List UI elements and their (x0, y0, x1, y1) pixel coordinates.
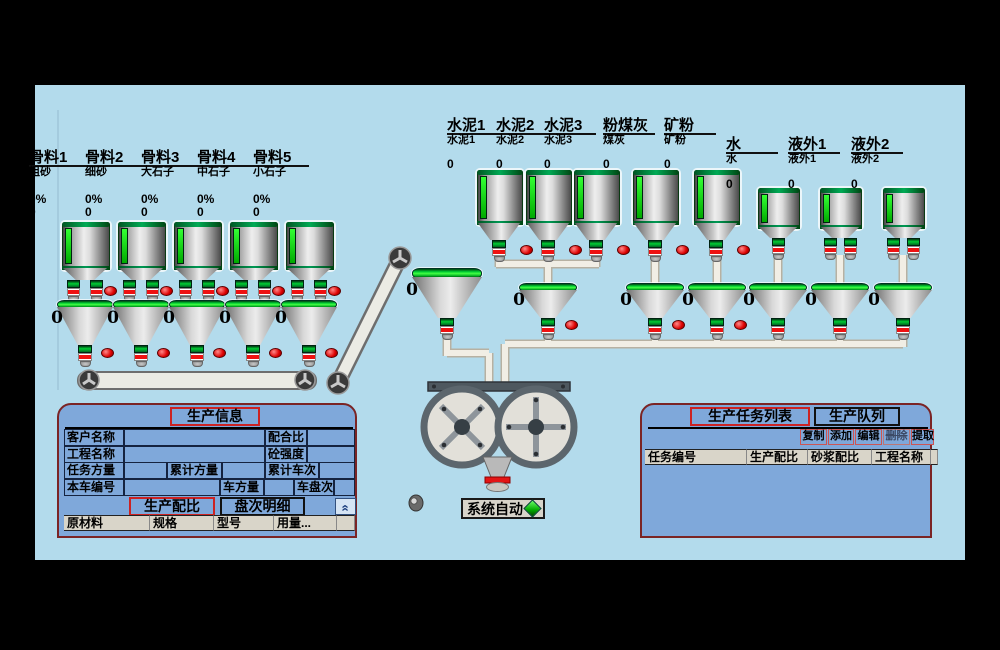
silo-cone (62, 268, 108, 280)
outlet-valve (291, 280, 304, 298)
weigh-hopper: 0 (626, 283, 684, 338)
silo-material-label: 煤灰 (603, 134, 655, 146)
weigh-hopper: 0 (874, 283, 932, 338)
outlet-valve (78, 345, 92, 361)
outlet-valve (190, 345, 204, 361)
weigh-hopper: 0 (519, 283, 577, 338)
silo-percent-value: 0% (29, 193, 85, 205)
silo-label: 骨料3 (141, 150, 197, 167)
hopper-weight-value: 0 (163, 310, 175, 327)
silo-body (62, 222, 110, 270)
task-button-4[interactable]: 删除 (883, 429, 910, 445)
hopper-weight-value: 0 (219, 310, 231, 327)
info-field-value[interactable] (319, 462, 355, 479)
hopper-weight-value: 0 (51, 310, 63, 327)
silo-body (633, 170, 679, 225)
silo-cone (633, 223, 677, 240)
silo-body (230, 222, 278, 270)
level-bar (761, 194, 768, 223)
outlet-valve (772, 238, 785, 254)
hopper-weight-value: 0 (513, 292, 525, 309)
task-button-5[interactable]: 提取 (911, 429, 934, 445)
silo-material-label: 水泥3 (544, 134, 596, 146)
silo-weight-value: 0 (85, 206, 141, 218)
outlet-valve (134, 345, 148, 361)
silo-material-label: 矿粉 (664, 134, 716, 146)
hopper-body (519, 290, 577, 318)
hopper-body (749, 290, 807, 318)
level-bar (121, 228, 128, 264)
info-field-label: 配合比 (265, 429, 307, 446)
horizontal-conveyor (78, 370, 316, 390)
silo-cone (820, 227, 860, 238)
scada-screen: 生产信息 客户名称配合比工程名称砼强度任务方量累计方量累计车次本车编号车方量车盘… (35, 85, 965, 560)
level-bar (697, 176, 704, 219)
silo-cone (477, 223, 521, 240)
aggregate-silo-unit: 骨料5小石子0%0 (281, 150, 337, 300)
info-field-label: 累计车次 (265, 462, 319, 479)
silo-label: 矿粉 (664, 118, 716, 135)
weigh-hopper: 0 (688, 283, 746, 338)
info-field-label: 累计方量 (167, 462, 222, 479)
aggregate-weigh-hopper: 0 (113, 300, 169, 366)
info-field-value[interactable] (124, 429, 265, 446)
silo-label: 骨料5 (253, 150, 309, 167)
hopper-body (113, 307, 169, 345)
receiving-funnel: 0 (412, 268, 482, 334)
silo-cone (286, 268, 332, 280)
outlet-valve (235, 280, 248, 298)
silo-weight-value: 0 (447, 158, 499, 170)
hopper-weight-value: 0 (107, 310, 119, 327)
silo-cone (574, 223, 618, 240)
info-field-value[interactable] (307, 446, 355, 463)
level-bar (823, 194, 830, 223)
silo-percent-value: 0% (197, 193, 253, 205)
silo-percent-value: 0% (141, 193, 197, 205)
mixer-discharge-gate (483, 457, 512, 492)
column-header[interactable]: 生产配比 (747, 449, 808, 465)
silo-weight-value: 0 (197, 206, 253, 218)
column-header[interactable] (337, 515, 355, 531)
silo-label: 液外2 (851, 137, 903, 154)
hopper-body (281, 307, 337, 345)
info-field-label: 砼强度 (265, 446, 307, 463)
outlet-valve (123, 280, 136, 298)
column-header[interactable]: 规格 (150, 515, 214, 531)
level-bar (886, 194, 893, 223)
outlet-valve (844, 238, 857, 254)
alarm-lamp (325, 348, 338, 358)
silo-label: 粉煤灰 (603, 118, 655, 135)
info-field-value[interactable] (222, 462, 265, 479)
silo-cone (883, 227, 923, 238)
silo-cone (118, 268, 164, 280)
task-button-2[interactable]: 添加 (828, 429, 854, 445)
column-header[interactable] (931, 449, 938, 465)
alarm-lamp (676, 245, 689, 255)
outlet-valve (896, 318, 910, 334)
silo-weight-value: 0 (496, 158, 548, 170)
outlet-valve (202, 280, 215, 298)
aggregate-weigh-hopper: 0 (281, 300, 337, 366)
outlet-valve (541, 318, 555, 334)
hopper-body (874, 290, 932, 318)
alarm-lamp (565, 320, 578, 330)
silo-label: 水泥3 (544, 118, 596, 135)
silo-label: 水泥1 (447, 118, 499, 135)
system-mode-label: 系统自动 (467, 499, 523, 519)
tab-batch-detail[interactable]: 盘次明细 (220, 497, 305, 516)
silo-weight-value: 0 (141, 206, 197, 218)
silo-material-label: 细砂 (85, 166, 141, 178)
level-bar (233, 228, 240, 264)
level-bar (577, 176, 584, 219)
level-bar (289, 228, 296, 264)
hopper-weight-value: 0 (406, 282, 418, 299)
production-info-title: 生产信息 (170, 407, 260, 426)
silo-percent-value: 0% (253, 193, 309, 205)
silo-material-label: 水 (726, 153, 778, 165)
silo-body (883, 188, 925, 229)
hopper-weight-value: 0 (743, 292, 755, 309)
silo-cone (174, 268, 220, 280)
info-field-value[interactable] (307, 429, 355, 446)
outlet-valve (771, 318, 785, 334)
weigh-hopper: 0 (811, 283, 869, 338)
silo-material-label: 大石子 (141, 166, 197, 178)
level-bar (636, 176, 643, 219)
aggregate-weigh-hopper: 0 (57, 300, 113, 366)
aggregate-weigh-hopper: 0 (169, 300, 225, 366)
level-bar (177, 228, 184, 264)
auto-mode-green-lamp (523, 499, 541, 517)
aggregate-weigh-hopper: 0 (225, 300, 281, 366)
hopper-weight-value: 0 (620, 292, 632, 309)
task-button-1[interactable]: 复制 (800, 429, 827, 445)
silo-weight-value: 0 (29, 206, 85, 218)
level-bar (529, 176, 536, 219)
mixer (424, 382, 574, 492)
silo-weight-value: 0 (664, 158, 716, 170)
silo-body (758, 188, 800, 229)
outlet-valve (440, 318, 454, 334)
silo-body (526, 170, 572, 225)
production-info-panel: 生产信息 客户名称配合比工程名称砼强度任务方量累计方量累计车次本车编号车方量车盘… (57, 403, 357, 538)
silo-label: 骨料1 (29, 150, 85, 167)
column-header[interactable]: 工程名称 (872, 449, 931, 465)
info-field-value[interactable] (334, 479, 355, 496)
outlet-valve (67, 280, 80, 298)
tab-production-ratio[interactable]: 生产配比 (129, 497, 215, 516)
task-list-panel: 生产任务列表 生产队列 复制添加编辑删除提取 任务编号生产配比砂浆配比工程名称 (640, 403, 932, 538)
info-field-label: 车方量 (220, 479, 264, 496)
silo-body (574, 170, 620, 225)
collapse-button[interactable]: « (335, 498, 356, 515)
outlet-valve (302, 345, 316, 361)
info-field-value[interactable] (124, 479, 220, 496)
info-field-value[interactable] (124, 462, 167, 479)
outlet-valve (90, 280, 103, 298)
info-field-label: 客户名称 (64, 429, 124, 446)
info-field-label: 车盘次 (294, 479, 334, 496)
silo-weight-value: 0 (603, 158, 655, 170)
liquid-silo-unit: 液外2液外20 (877, 137, 929, 255)
silo-material-label: 小石子 (253, 166, 309, 178)
outlet-valve (492, 240, 506, 256)
info-field-label: 本车编号 (64, 479, 124, 496)
silo-body (286, 222, 334, 270)
task-table-body[interactable] (643, 465, 931, 538)
outlet-valve (833, 318, 847, 334)
silo-body (477, 170, 523, 225)
hopper-weight-value: 0 (805, 292, 817, 309)
outlet-valve (541, 240, 555, 256)
alarm-lamp (734, 320, 747, 330)
column-header[interactable]: 砂浆配比 (808, 449, 872, 465)
outlet-valve (246, 345, 260, 361)
outlet-valve (907, 238, 920, 254)
weigh-hopper: 0 (749, 283, 807, 338)
silo-material-label: 中石子 (197, 166, 253, 178)
outlet-valve (589, 240, 603, 256)
silo-material-label: 液外1 (788, 153, 840, 165)
silo-weight-value: 0 (544, 158, 596, 170)
outlet-valve (710, 318, 724, 334)
info-field-label: 工程名称 (64, 446, 124, 463)
silo-material-label: 水泥1 (447, 134, 499, 146)
column-header[interactable]: 用量... (274, 515, 337, 531)
outlet-valve (146, 280, 159, 298)
hopper-body (688, 290, 746, 318)
alarm-lamp (737, 245, 750, 255)
outlet-valve (258, 280, 271, 298)
hopper-body (412, 277, 482, 318)
hopper-body (811, 290, 869, 318)
silo-percent-value: 0% (85, 193, 141, 205)
outlet-valve (824, 238, 837, 254)
alarm-speaker-icon (409, 495, 423, 511)
outlet-valve (887, 238, 900, 254)
silo-label: 骨料2 (85, 150, 141, 167)
tab-production-queue[interactable]: 生产队列 (814, 407, 900, 426)
outlet-valve (179, 280, 192, 298)
silo-material-label: 粗砂 (29, 166, 85, 178)
outlet-valve (314, 280, 327, 298)
alarm-lamp (328, 286, 341, 296)
hopper-body (57, 307, 113, 345)
column-header[interactable]: 型号 (214, 515, 274, 531)
silo-cone (758, 227, 798, 238)
outlet-valve (709, 240, 723, 256)
level-bar (65, 228, 72, 264)
silo-body (820, 188, 862, 229)
level-bar (480, 176, 487, 219)
silo-body (118, 222, 166, 270)
task-button-3[interactable]: 编辑 (855, 429, 882, 445)
silo-label: 骨料4 (197, 150, 253, 167)
hopper-body (169, 307, 225, 345)
silo-material-label: 液外2 (851, 153, 903, 165)
silo-label: 水泥2 (496, 118, 548, 135)
double-chevron-up-icon: « (338, 504, 352, 511)
hopper-weight-value: 0 (682, 292, 694, 309)
info-field-label: 任务方量 (64, 462, 124, 479)
silo-cone (526, 223, 570, 240)
inclined-conveyor (327, 247, 411, 394)
system-mode-indicator[interactable]: 系统自动 (461, 498, 545, 519)
silo-label: 液外1 (788, 137, 840, 154)
hopper-weight-value: 0 (868, 292, 880, 309)
hopper-body (626, 290, 684, 318)
silo-cone (694, 223, 738, 240)
alarm-lamp (672, 320, 685, 330)
column-header[interactable]: 原材料 (64, 515, 150, 531)
outlet-valve (648, 318, 662, 334)
info-field-value[interactable] (124, 446, 265, 463)
tab-task-list[interactable]: 生产任务列表 (690, 407, 810, 426)
silo-label: 水 (726, 137, 778, 154)
hopper-body (225, 307, 281, 345)
silo-material-label: 水泥2 (496, 134, 548, 146)
hopper-weight-value: 0 (275, 310, 287, 327)
silo-body (174, 222, 222, 270)
column-header[interactable]: 任务编号 (645, 449, 747, 465)
batching-plant-hmi: 生产信息 客户名称配合比工程名称砼强度任务方量累计方量累计车次本车编号车方量车盘… (0, 0, 1000, 650)
silo-weight-value: 0 (253, 206, 309, 218)
silo-cone (230, 268, 276, 280)
info-field-value[interactable] (264, 479, 294, 496)
outlet-valve (648, 240, 662, 256)
